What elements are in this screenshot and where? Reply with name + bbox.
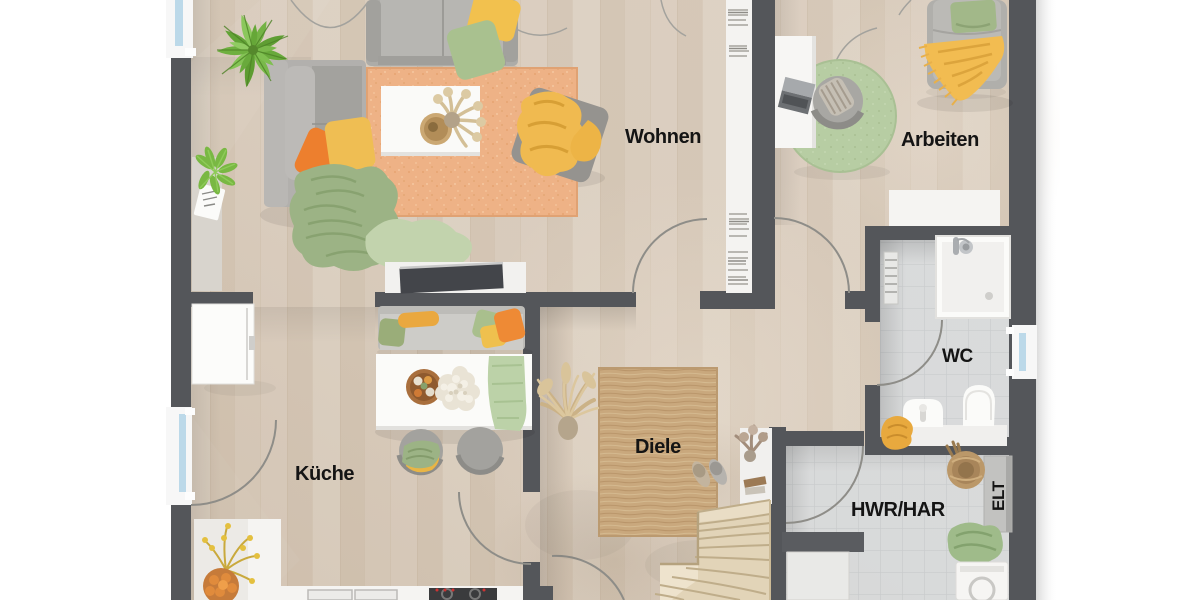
svg-text:HWR/HAR: HWR/HAR [851, 499, 946, 521]
svg-text:ELT: ELT [989, 480, 1008, 511]
svg-text:WC: WC [942, 346, 974, 367]
svg-text:Küche: Küche [295, 463, 354, 485]
svg-text:Arbeiten: Arbeiten [901, 129, 979, 151]
svg-text:Wohnen: Wohnen [625, 126, 701, 148]
svg-text:Diele: Diele [635, 436, 681, 458]
